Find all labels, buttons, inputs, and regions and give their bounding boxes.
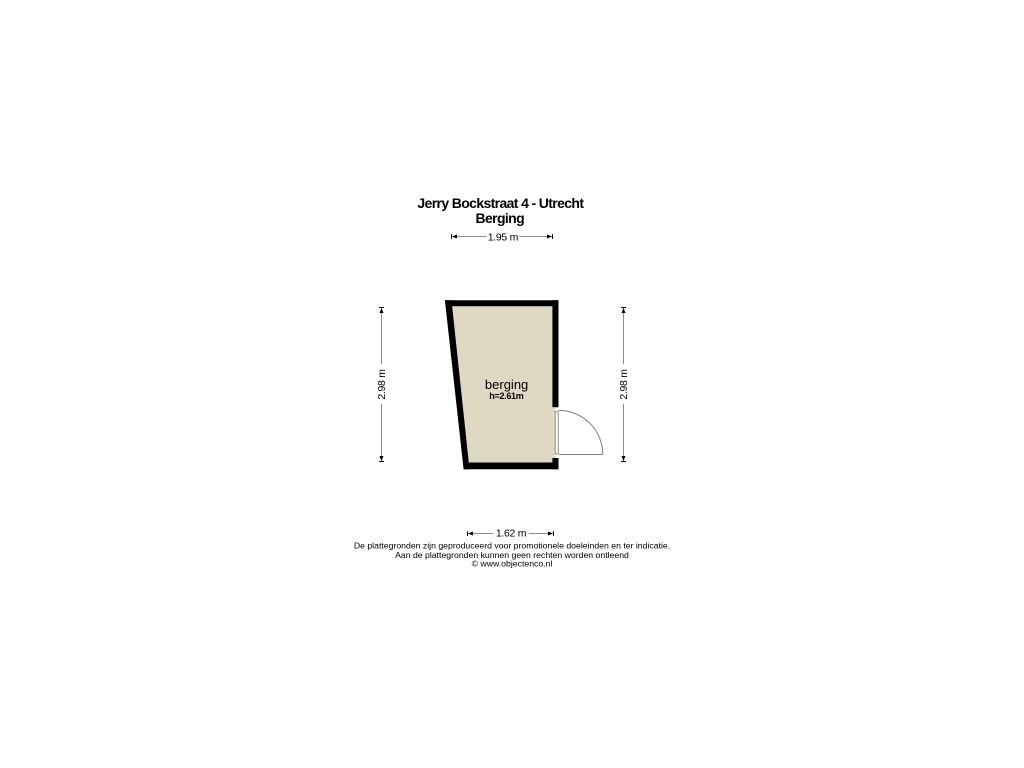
svg-text:h=2.61m: h=2.61m xyxy=(489,391,523,401)
svg-text:2.98 m: 2.98 m xyxy=(618,369,630,400)
svg-text:1.62 m: 1.62 m xyxy=(496,528,527,540)
svg-text:Jerry Bockstraat 4 - Utrecht: Jerry Bockstraat 4 - Utrecht xyxy=(417,195,584,211)
svg-text:berging: berging xyxy=(485,377,528,392)
svg-text:Berging: Berging xyxy=(476,210,525,226)
svg-text:© www.objectenco.nl: © www.objectenco.nl xyxy=(472,559,553,569)
svg-text:1.95 m: 1.95 m xyxy=(488,232,519,244)
svg-text:2.98 m: 2.98 m xyxy=(376,369,388,400)
